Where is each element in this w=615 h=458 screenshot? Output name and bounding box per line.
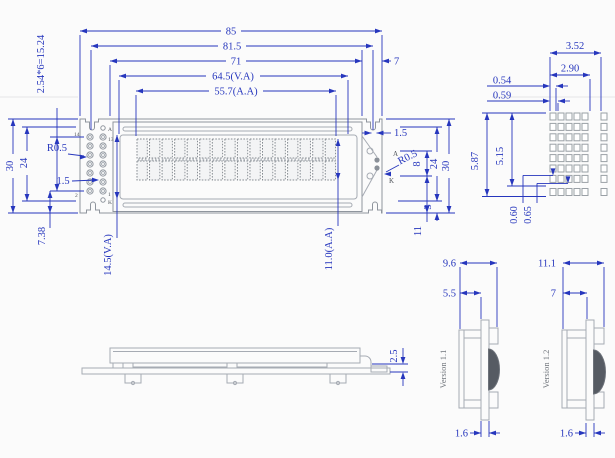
dim-label-front-right-notch: 1.5 [394, 128, 407, 139]
char-cell [250, 139, 260, 158]
dimension-arrow [48, 191, 53, 198]
dim-label-front-pins-a: A [108, 127, 112, 133]
dim-label-sections-0-front: 5.5 [443, 289, 456, 300]
char-cell [150, 161, 160, 180]
dim-label-front-left-h30: 30 [5, 161, 16, 172]
dimension-arrow [510, 179, 515, 186]
pixel-dot [558, 165, 564, 172]
dim-label-front-bottom-va: 14.5(V.A) [103, 234, 114, 276]
anode-hole [101, 126, 105, 130]
dimension-arrow [556, 84, 563, 89]
dimension-arrow [594, 431, 601, 436]
dimension-arrow [25, 194, 30, 201]
char-cell [300, 161, 310, 180]
pixel-dot [566, 123, 572, 130]
char-cell [200, 161, 210, 180]
pixel-dot [550, 134, 556, 141]
dimension-arrow [382, 59, 389, 64]
dimension-arrow [597, 261, 604, 266]
char-cell [250, 161, 260, 180]
dimension-arrow [375, 29, 382, 34]
pixel-dot [550, 175, 556, 182]
pixel-dot [582, 113, 588, 120]
char-cell [275, 139, 285, 158]
section-lens-blob [489, 349, 500, 390]
char-cell [175, 139, 185, 158]
char-cell [313, 161, 323, 180]
dim-label-front-pins-p14: 14 [74, 132, 80, 138]
side-frame-edge [237, 363, 327, 367]
dimension-arrow [435, 213, 440, 220]
pixel-dot [558, 189, 564, 196]
pin-hole-core [89, 172, 92, 175]
section-tab [489, 392, 498, 408]
dimension-arrow [401, 357, 406, 364]
dim-label-detail-px: 3.52 [566, 41, 584, 52]
dimension-arrow [579, 431, 586, 436]
dimension-arrow [92, 178, 99, 183]
side-step-strip [371, 366, 387, 372]
pixel-dot [582, 144, 588, 151]
pixel-dot [582, 155, 588, 162]
backlight-hole [367, 173, 373, 179]
dimension-arrow [11, 206, 16, 213]
pin-hole-core [102, 154, 105, 157]
dimension-arrow [580, 291, 587, 296]
char-cell [162, 139, 172, 158]
char-cell [212, 161, 222, 180]
char-cell [137, 139, 147, 158]
dimension-arrow [563, 291, 570, 296]
pixel-dot [566, 165, 572, 172]
dimension-arrow [550, 51, 557, 56]
pixel-dot [601, 134, 607, 141]
pixel-dot [550, 123, 556, 130]
dimension-arrow [91, 44, 98, 49]
pixel-dot [566, 134, 572, 141]
pin-hole-core [89, 181, 92, 184]
bezel-slot-bottom [123, 203, 352, 207]
pin-hole-core [102, 172, 105, 175]
pixel-dot [558, 113, 564, 120]
dim-label-front-top-3: 64.5(V.A) [212, 72, 254, 83]
pin-hole-core [89, 136, 92, 139]
section-lens-blob [594, 350, 606, 394]
pixel-dot [601, 144, 607, 151]
pin-hole-core [102, 190, 105, 193]
dim-label-front-right-e3: 3 [423, 204, 434, 209]
pixel-dot [574, 113, 580, 120]
pixel-dot [566, 113, 572, 120]
bezel-fold-line [362, 170, 377, 197]
dim-label-front-left-pitch: 2.54*6=15.24 [36, 34, 47, 93]
dim-label-front-left-h24: 24 [19, 157, 30, 168]
dim-label-front-pins-p1: 1 [108, 192, 111, 198]
dimension-arrow [329, 89, 336, 94]
pixel-dot [574, 155, 580, 162]
dim-label-front-pins-k: K [108, 200, 112, 206]
dimension-arrow [401, 372, 406, 379]
pixel-dot [574, 189, 580, 196]
pixel-dot [566, 189, 572, 196]
pixel-dot [550, 144, 556, 151]
dimension-arrow [510, 113, 515, 120]
dim-label-detail-ax: 2.90 [561, 64, 579, 75]
char-cell [237, 139, 247, 158]
dim-label-sections-1-total: 11.1 [538, 259, 556, 270]
dimension-arrow [447, 206, 452, 213]
dimension-arrow [550, 73, 557, 78]
dim-label-front-top-2: 71 [231, 57, 242, 68]
drawing-sheet: 8581.57164.5(V.A)55.7(A.A)72.54*6=15.243… [0, 0, 615, 458]
dim-label-front-right-b11: 11 [413, 226, 424, 236]
pin-hole-core [89, 145, 92, 148]
pixel-dot [550, 155, 556, 162]
dimension-arrow [447, 119, 452, 126]
dim-label-detail-py: 5.87 [470, 152, 481, 170]
section-pcb [481, 320, 489, 420]
char-cell [175, 161, 185, 180]
pixel-dot [558, 175, 564, 182]
dimension-arrow [425, 151, 430, 158]
dim-label-sections-1-label: Version 1.2 [541, 350, 551, 389]
side-pcb [82, 368, 390, 374]
pixel-dot [582, 165, 588, 172]
section-tab [489, 328, 498, 344]
dimension-arrow [594, 51, 601, 56]
cathode-hole [101, 198, 105, 202]
char-cell [313, 139, 323, 158]
pixel-dot [574, 175, 580, 182]
pixel-dot [601, 165, 607, 172]
dimension-arrow [489, 431, 496, 436]
dimension-arrow [11, 119, 16, 126]
char-cell [275, 161, 285, 180]
pixel-dot [601, 113, 607, 120]
pixel-dot [582, 123, 588, 130]
backlight-pin [374, 157, 379, 162]
dim-label-detail-dh: 0.60 [509, 206, 520, 224]
dimension-arrow [543, 99, 550, 104]
dimension-arrow [365, 131, 372, 136]
pixel-dot [582, 189, 588, 196]
dim-label-front-right-ak8: 8 [412, 161, 423, 166]
pin-hole-core [102, 181, 105, 184]
dim-label-front-bottom-aa: 11.0(A.A) [324, 227, 335, 270]
char-cell [150, 139, 160, 158]
dimension-arrow [136, 89, 143, 94]
parts-layer [0, 97, 615, 420]
dim-label-detail-dpx: 0.59 [493, 91, 511, 102]
dimension-arrow [366, 44, 373, 49]
char-cell [237, 161, 247, 180]
pixel-dot [582, 134, 588, 141]
dimension-arrow [80, 155, 87, 160]
dimension-arrow [460, 261, 467, 266]
section-tab [594, 392, 604, 408]
section-body [562, 330, 586, 408]
dim-label-front-right-h30: 30 [441, 161, 452, 172]
dimension-arrow [474, 431, 481, 436]
pin-hole-core [89, 190, 92, 193]
dimension-arrow [355, 59, 362, 64]
char-cell [162, 161, 172, 180]
dim-label-detail-ay: 5.15 [495, 147, 506, 165]
section-body [459, 330, 481, 408]
dim-label-front-pins-p2: 2 [75, 193, 78, 199]
section-pcb [586, 320, 594, 420]
dimension-arrow [119, 74, 126, 79]
pin-hole-core [102, 136, 105, 139]
backlight-pin [374, 165, 379, 170]
pin-hole-core [102, 163, 105, 166]
dimension-arrow [115, 192, 120, 199]
char-cell [225, 139, 235, 158]
dimension-arrow [485, 189, 490, 196]
dim-label-sections-0-total: 9.6 [443, 259, 456, 270]
dim-label-front-bl-k: K [389, 177, 394, 185]
dim-label-front-pins-p13: 13 [108, 137, 114, 143]
pixel-dot [574, 134, 580, 141]
section-tab [594, 328, 604, 344]
bezel-slot-top [123, 127, 352, 131]
dimension-arrow [435, 194, 440, 201]
pixel-dot [574, 123, 580, 130]
pixel-dot [566, 144, 572, 151]
pixel-dot [558, 123, 564, 130]
dim-label-sections-0-pcb: 1.6 [455, 429, 468, 440]
char-cell [200, 139, 210, 158]
side-lip [113, 363, 123, 368]
pixel-dot [601, 175, 607, 182]
dim-label-front-top-0: 85 [226, 27, 237, 38]
dim-label-front-left-off: 7.38 [37, 227, 48, 245]
dimension-arrow [558, 99, 565, 104]
dimension-arrow [485, 113, 490, 120]
char-cell [225, 161, 235, 180]
dimension-arrow [336, 173, 341, 180]
dimension-arrow [474, 291, 481, 296]
dimension-arrow [48, 206, 53, 213]
dimension-arrow [384, 172, 391, 177]
pixel-dot [566, 155, 572, 162]
pixel-dot [558, 155, 564, 162]
dimension-arrow [110, 59, 117, 64]
dim-label-front-bl-a: A [393, 150, 398, 158]
char-cell [187, 139, 197, 158]
side-frame-edge [133, 363, 227, 367]
dim-label-front-top-4: 55.7(A.A) [214, 87, 258, 98]
pixel-dot [582, 175, 588, 182]
dim-label-detail-dw: 0.54 [493, 76, 512, 87]
char-cell [300, 139, 310, 158]
char-cell [288, 161, 298, 180]
dim-label-sections-1-pcb: 1.6 [560, 429, 573, 440]
dim-label-front-left-r: R0.5 [47, 143, 67, 154]
dim-label-side-step: 2.5 [389, 349, 400, 362]
technical-drawing: 8581.57164.5(V.A)55.7(A.A)72.54*6=15.243… [0, 0, 615, 458]
char-cell [263, 161, 273, 180]
dimensions-layer: 8581.57164.5(V.A)55.7(A.A)72.54*6=15.243… [5, 27, 605, 440]
dimension-arrow [341, 74, 348, 79]
dimension-arrow [435, 127, 440, 134]
dimension-line [386, 165, 399, 172]
dim-label-front-top-5: 7 [394, 57, 399, 68]
char-cell [288, 139, 298, 158]
pixel-dot [550, 189, 556, 196]
dim-label-front-left-gap: 1.5 [56, 176, 69, 187]
dimension-arrow [490, 261, 497, 266]
dim-label-detail-dpy: 0.65 [523, 206, 534, 224]
char-cell [325, 139, 335, 158]
pixel-dot [550, 113, 556, 120]
dimension-arrow [80, 29, 87, 34]
pixel-dot [574, 165, 580, 172]
pixel-dot [558, 144, 564, 151]
pixel-dot [601, 189, 607, 196]
dimension-arrow [377, 131, 384, 136]
pixel-dot [601, 155, 607, 162]
pin-hole-core [102, 145, 105, 148]
dimension-arrow [460, 291, 467, 296]
dim-label-front-right-h24: 24 [429, 158, 440, 169]
char-cell [325, 161, 335, 180]
char-cell [263, 139, 273, 158]
dimension-arrow [583, 73, 590, 78]
side-body [110, 348, 360, 363]
dimension-arrow [563, 261, 570, 266]
dim-label-sections-0-label: Version 1.1 [438, 350, 448, 389]
char-cell [137, 161, 147, 180]
pin-hole-core [89, 154, 92, 157]
dimension-arrow [25, 127, 30, 134]
dimension-arrow [336, 139, 341, 146]
char-cell [212, 139, 222, 158]
pixel-dot [601, 123, 607, 130]
dim-label-sections-1-front: 7 [551, 289, 556, 300]
side-step [360, 356, 371, 366]
dimension-arrow [425, 176, 430, 183]
pin-hole-core [89, 163, 92, 166]
dimension-arrow [115, 135, 120, 142]
pixel-dot [558, 134, 564, 141]
dim-label-front-top-1: 81.5 [223, 42, 241, 53]
char-cell [187, 161, 197, 180]
pixel-dot [574, 144, 580, 151]
dimension-arrow [543, 84, 550, 89]
